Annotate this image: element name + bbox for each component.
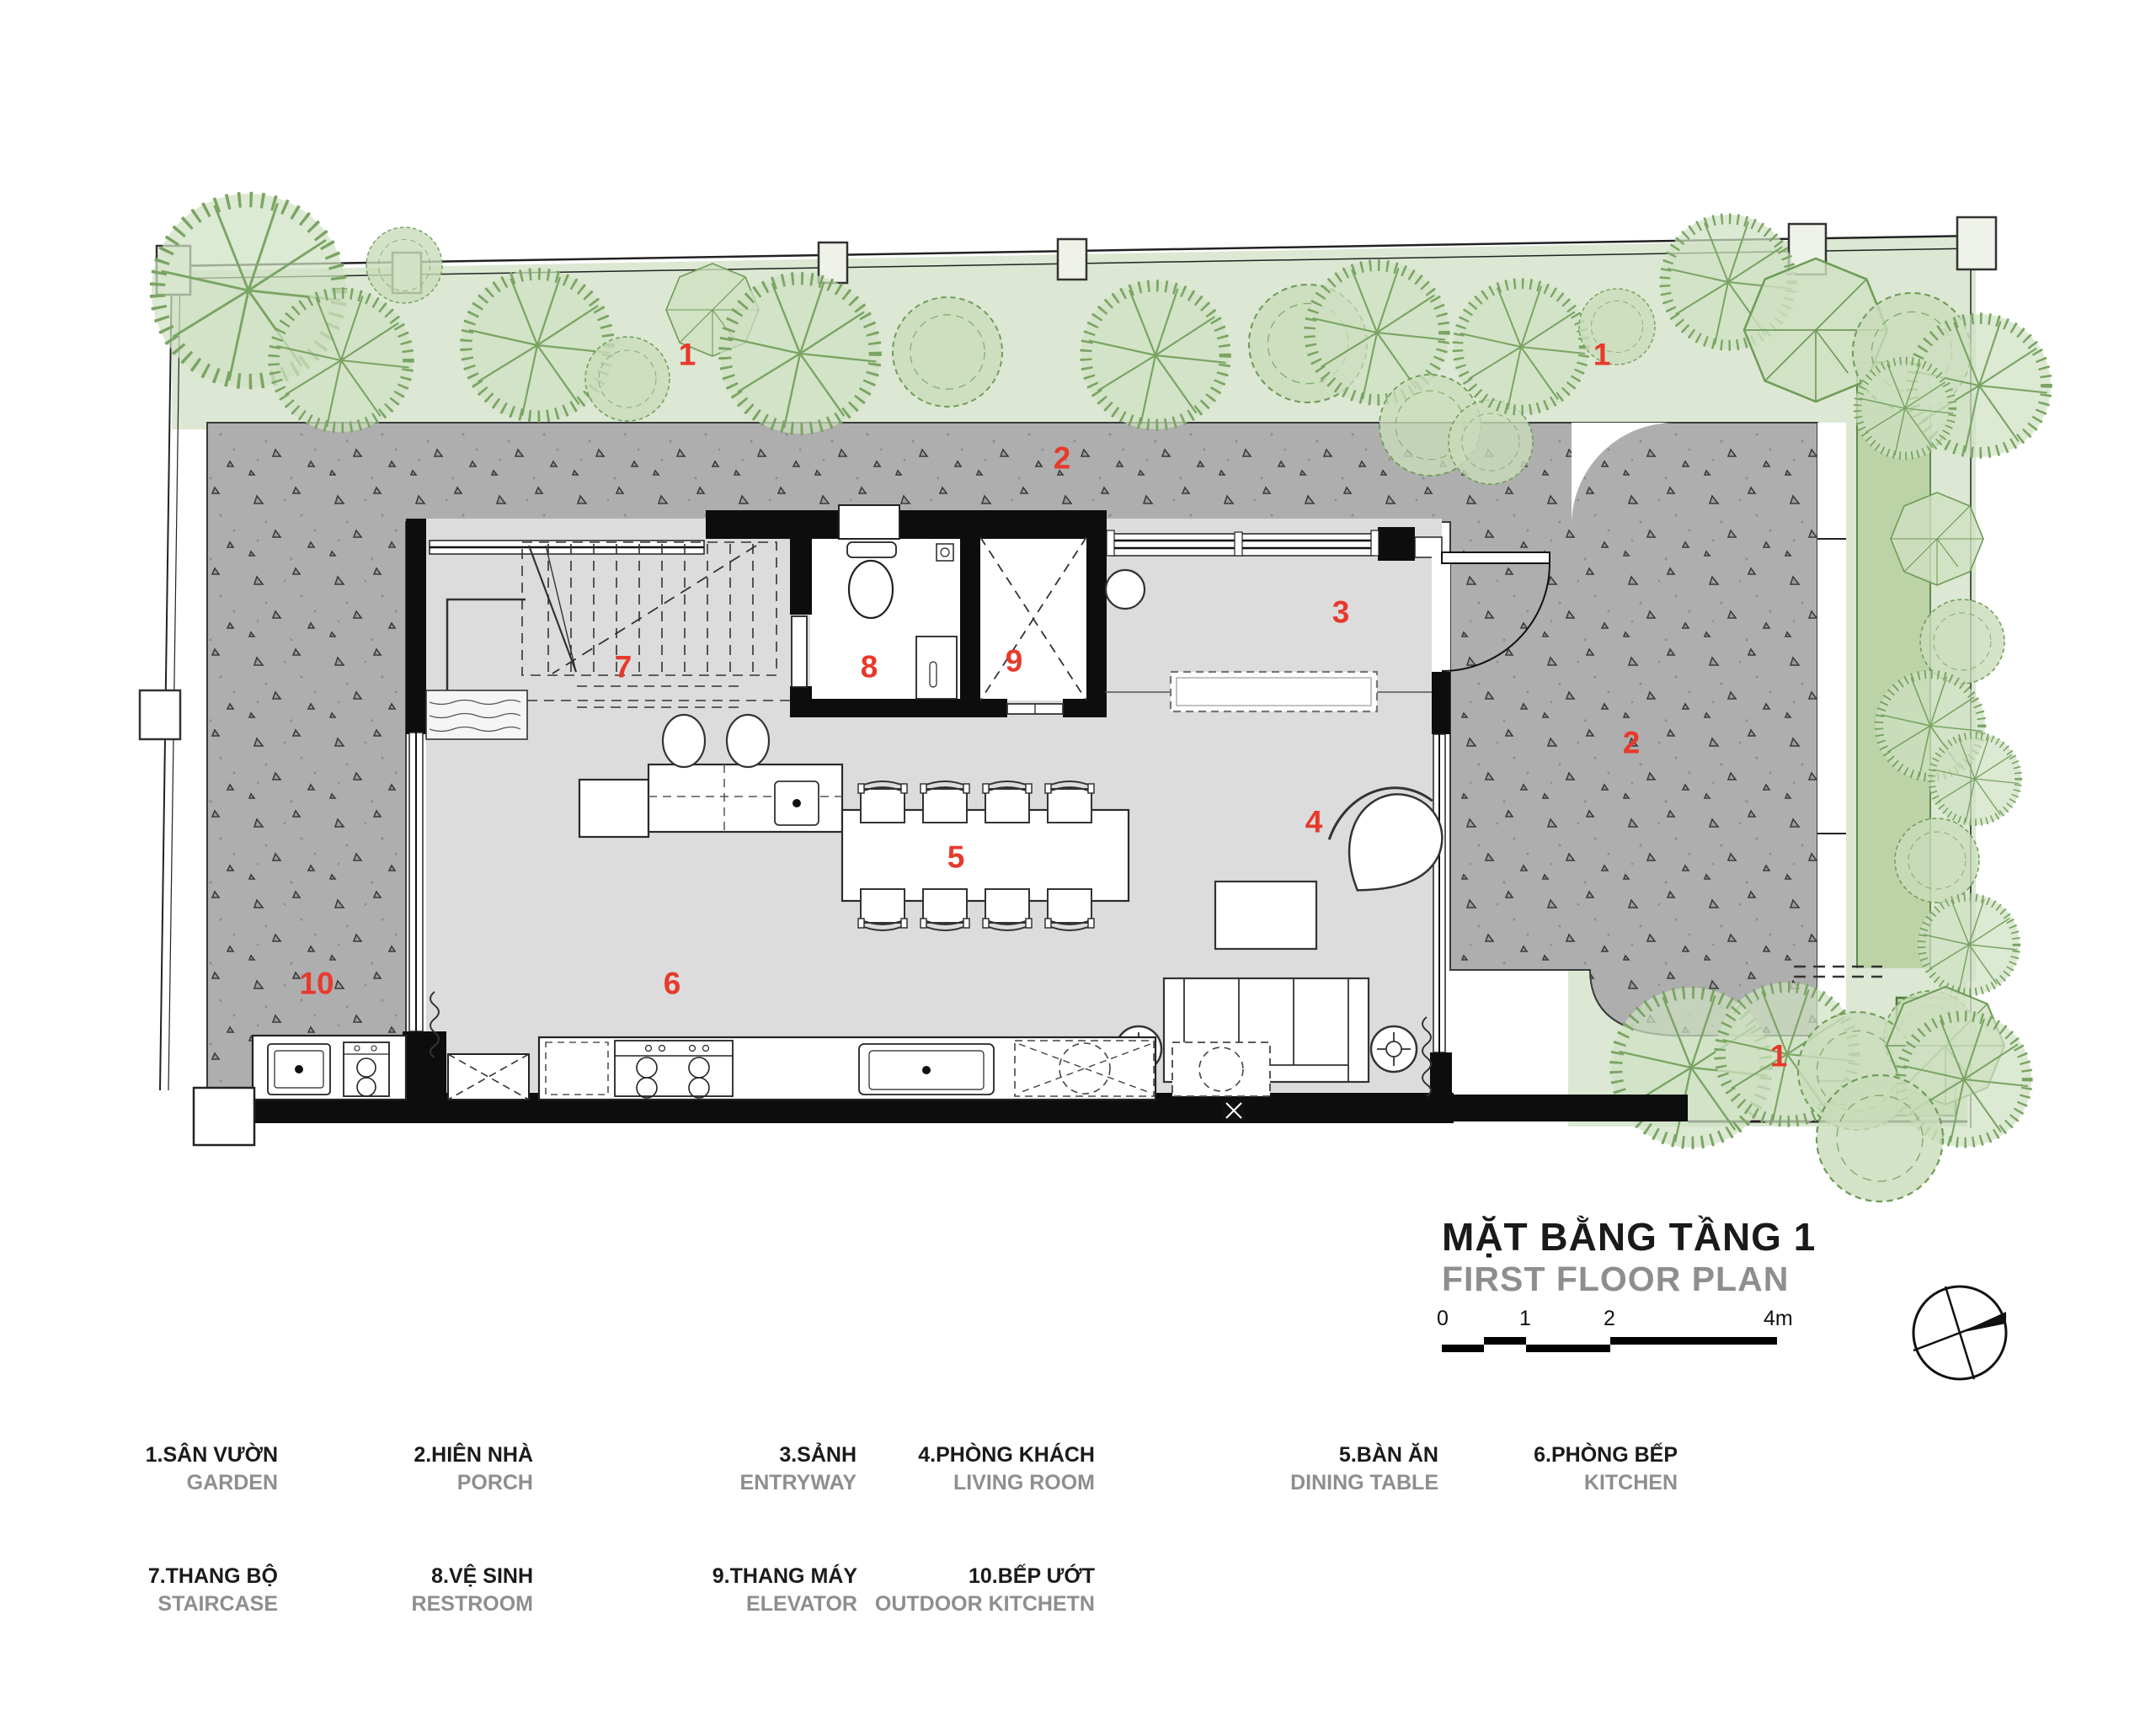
side-setback-strip <box>1817 423 1846 1037</box>
plant-pot <box>1106 570 1145 609</box>
legend-kitchen-en: KITCHEN <box>1425 1469 1678 1497</box>
legend-outdoor-kitchen: 10.BẾP ƯỚT OUTDOOR KITCHETN <box>842 1563 1095 1618</box>
marker-restroom-8: 8 <box>861 652 878 683</box>
wall-drain-box <box>1223 1100 1245 1121</box>
legend-dining-vi: 5.BÀN ĂN <box>1186 1441 1438 1469</box>
marker-garden-1c: 1 <box>1770 1041 1788 1072</box>
legend-porch: 2.HIÊN NHÀ PORCH <box>280 1441 533 1497</box>
legend-living-vi: 4.PHÒNG KHÁCH <box>842 1441 1095 1469</box>
legend-living: 4.PHÒNG KHÁCH LIVING ROOM <box>842 1441 1095 1497</box>
legend-staircase-en: STAIRCASE <box>25 1590 278 1618</box>
dining-table <box>842 810 1129 901</box>
restroom-door <box>792 616 807 687</box>
outdoor-kitchen-counter <box>253 1036 406 1100</box>
legend-staircase-vi: 7.THANG BỘ <box>25 1563 278 1590</box>
legend-porch-en: PORCH <box>280 1469 533 1497</box>
legend-restroom-en: RESTROOM <box>280 1590 533 1618</box>
legend-garden: 1.SÂN VƯỜN GARDEN <box>25 1441 278 1497</box>
kitchen-counter <box>539 1037 1155 1100</box>
legend-outdoor-kitchen-en: OUTDOOR KITCHETN <box>842 1590 1095 1618</box>
scale-tick-4m: 4m <box>1764 1307 1793 1331</box>
scale-segment <box>1610 1337 1777 1345</box>
kitchen-sink <box>859 1044 994 1095</box>
marker-living-4: 4 <box>1305 807 1323 838</box>
legend-staircase: 7.THANG BỘ STAIRCASE <box>25 1563 278 1618</box>
scale-tick-0: 0 <box>1437 1307 1449 1331</box>
legend-kitchen-vi: 6.PHÒNG BẾP <box>1425 1441 1678 1469</box>
legend-porch-vi: 2.HIÊN NHÀ <box>280 1441 533 1469</box>
scale-bar: 0 1 2 4m <box>1442 1307 1796 1357</box>
marker-porch-2: 2 <box>1054 443 1071 474</box>
legend-elevator-vi: 9.THANG MÁY <box>605 1563 857 1590</box>
legend-elevator: 9.THANG MÁY ELEVATOR <box>605 1563 857 1618</box>
legend-living-en: LIVING ROOM <box>842 1469 1095 1497</box>
counter-module-right <box>1172 1042 1270 1096</box>
marker-stair-7: 7 <box>615 652 632 683</box>
marker-outdoor-10: 10 <box>299 968 334 999</box>
wood-deck <box>426 690 527 739</box>
marker-garden-1: 1 <box>679 339 696 370</box>
legend-restroom-vi: 8.VỆ SINH <box>280 1563 533 1590</box>
scale-tick-2: 2 <box>1604 1307 1615 1331</box>
page-title: MẶT BẰNG TẦNG 1 <box>1442 1214 1816 1260</box>
legend-dining-en: DINING TABLE <box>1186 1469 1438 1497</box>
floor-hatch <box>448 1054 529 1100</box>
scale-segment <box>1484 1337 1526 1345</box>
cooktop <box>615 1041 733 1098</box>
legend-garden-vi: 1.SÂN VƯỜN <box>25 1441 278 1469</box>
marker-kitchen-6: 6 <box>664 968 681 999</box>
legend-elevator-en: ELEVATOR <box>605 1590 857 1618</box>
legend-outdoor-kitchen-vi: 10.BẾP ƯỚT <box>842 1563 1095 1590</box>
legend-entryway-vi: 3.SẢNH <box>604 1441 857 1469</box>
page-subtitle: FIRST FLOOR PLAN <box>1442 1260 1789 1299</box>
marker-elevator-9: 9 <box>1006 646 1023 677</box>
legend-garden-en: GARDEN <box>25 1469 278 1497</box>
marker-dining-5: 5 <box>947 842 965 873</box>
legend-entryway: 3.SẢNH ENTRYWAY <box>604 1441 857 1497</box>
marker-garden-1b: 1 <box>1593 339 1611 370</box>
marker-porch-2b: 2 <box>1623 727 1641 759</box>
scale-segment <box>1526 1345 1610 1352</box>
legend-restroom: 8.VỆ SINH RESTROOM <box>280 1563 533 1618</box>
coffee-table <box>1215 882 1316 949</box>
legend-entryway-en: ENTRYWAY <box>604 1469 857 1497</box>
legend-kitchen: 6.PHÒNG BẾP KITCHEN <box>1425 1441 1678 1497</box>
corner-post <box>194 1088 254 1145</box>
marker-entry-3: 3 <box>1332 597 1350 628</box>
scale-tick-1: 1 <box>1519 1307 1531 1331</box>
side-table-right <box>1371 1026 1417 1072</box>
floor-plan-page: 1 1 1 2 2 3 4 5 6 7 8 9 10 MẶT BẰNG TẦNG… <box>0 0 2156 1726</box>
scale-segment <box>1442 1345 1484 1352</box>
north-arrow-compass <box>1913 1287 2006 1379</box>
legend-dining: 5.BÀN ĂN DINING TABLE <box>1186 1441 1438 1497</box>
